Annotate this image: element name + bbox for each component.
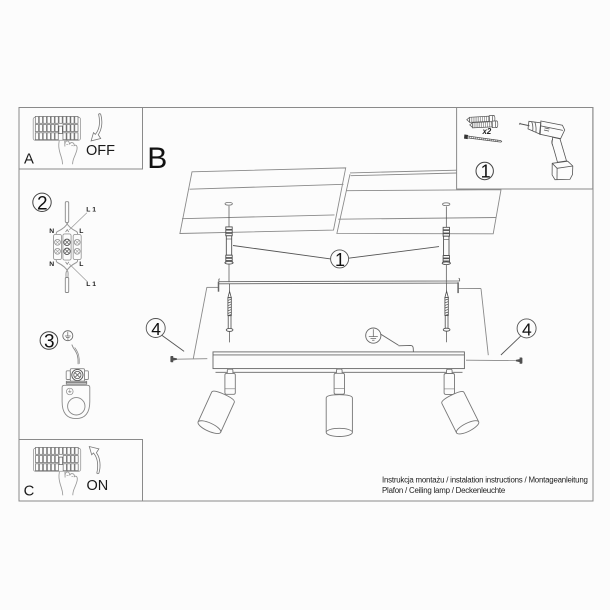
svg-text:4: 4 — [151, 319, 161, 339]
svg-text:L: L — [79, 261, 83, 268]
svg-text:2: 2 — [37, 193, 48, 214]
svg-text:C: C — [24, 483, 35, 499]
svg-text:1: 1 — [335, 250, 345, 270]
svg-text:Plafon / Ceiling lamp / Decken: Plafon / Ceiling lamp / Deckenleuchte — [382, 486, 506, 495]
svg-text:Instrukcja montażu / instalati: Instrukcja montażu / instalation instruc… — [382, 476, 588, 485]
svg-text:3: 3 — [44, 332, 55, 353]
svg-text:A: A — [24, 152, 34, 168]
svg-text:B: B — [147, 142, 167, 175]
svg-text:1: 1 — [481, 162, 491, 182]
svg-text:OFF: OFF — [86, 143, 115, 159]
svg-text:L 1: L 1 — [86, 207, 96, 214]
svg-text:N: N — [49, 228, 54, 235]
svg-text:L 1: L 1 — [86, 281, 96, 288]
svg-text:ON: ON — [87, 478, 109, 494]
svg-text:4: 4 — [522, 320, 532, 340]
svg-text:N: N — [49, 261, 54, 268]
svg-text:x2: x2 — [482, 127, 492, 136]
